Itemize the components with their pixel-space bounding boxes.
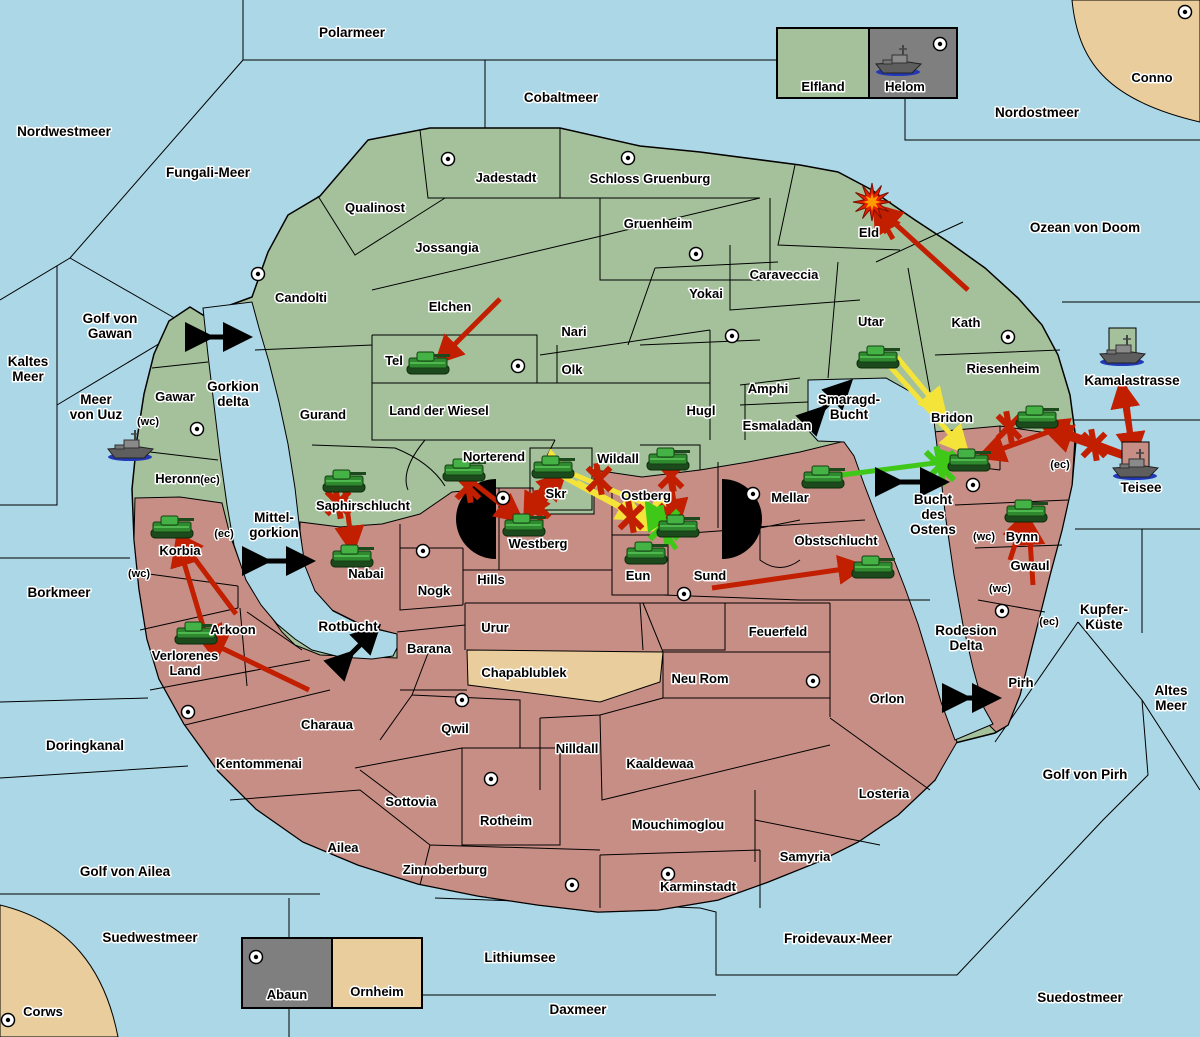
legend-label-elfland: Elfland: [801, 79, 844, 94]
coast-status-label: (ec): [1050, 459, 1070, 471]
region-label[interactable]: Conno: [1131, 70, 1172, 85]
region-label[interactable]: Neu Rom: [671, 671, 728, 686]
city-marker: [252, 268, 265, 281]
region-label[interactable]: Nilldall: [556, 741, 599, 756]
sea-label: Golf von Ailea: [80, 864, 171, 879]
region-label[interactable]: Ailea: [327, 840, 359, 855]
region-label[interactable]: Kaaldewaa: [626, 756, 694, 771]
city-marker: [996, 605, 1009, 618]
region-label[interactable]: Sottovia: [385, 794, 437, 809]
city-marker: [747, 488, 760, 501]
region-label[interactable]: Tel: [385, 353, 403, 368]
sea-label: Nordwestmeer: [17, 124, 112, 139]
coast-status-label: (ec): [200, 474, 220, 486]
region-label[interactable]: Korbia: [159, 543, 201, 558]
sea-label: Borkmeer: [27, 585, 91, 600]
sea-label: Kupfer-Küste: [1080, 602, 1128, 632]
region-label[interactable]: Hugl: [687, 403, 716, 418]
city-marker: [690, 248, 703, 261]
city-marker: [512, 360, 525, 373]
region-label[interactable]: Qualinost: [345, 200, 406, 215]
city-marker: [622, 152, 635, 165]
region-label[interactable]: Samyria: [780, 849, 831, 864]
region-label[interactable]: Obstschlucht: [794, 533, 878, 548]
legend-label-abaun: Abaun: [267, 987, 308, 1002]
region-label[interactable]: Schloss Gruenburg: [590, 171, 711, 186]
region-label[interactable]: Caraveccia: [750, 267, 819, 282]
region-label[interactable]: Pirh: [1008, 675, 1033, 690]
game-map: Elfland Helom Abaun Ornheim PolarmeerCob…: [0, 0, 1200, 1037]
coast-status-label: (wc): [973, 531, 995, 543]
region-label[interactable]: Feuerfeld: [749, 624, 808, 639]
region-label[interactable]: Yokai: [689, 286, 723, 301]
region-label[interactable]: Eld: [859, 225, 879, 240]
coast-status-label: (wc): [989, 583, 1011, 595]
region-label[interactable]: Nari: [561, 324, 586, 339]
sea-label: Lithiumsee: [484, 950, 556, 965]
city-marker: [934, 38, 947, 51]
city-marker: [182, 706, 195, 719]
city-marker: [1179, 6, 1192, 19]
region-label[interactable]: Nogk: [418, 583, 451, 598]
sea-label: Suedwestmeer: [102, 930, 198, 945]
region-label[interactable]: Skr: [546, 486, 567, 501]
region-label[interactable]: Westberg: [509, 536, 568, 551]
region-label[interactable]: Sund: [694, 568, 727, 583]
sea-label: Mittel-gorkion: [249, 510, 299, 540]
region-label[interactable]: Mellar: [771, 490, 809, 505]
region-label[interactable]: Corws: [23, 1004, 63, 1019]
sea-label: Golf vonGawan: [83, 311, 138, 341]
legend-bottom: Abaun Ornheim: [242, 938, 422, 1008]
region-label[interactable]: Orlon: [870, 691, 905, 706]
sea-label: AltesMeer: [1154, 683, 1187, 713]
sea-label: Rotbucht: [318, 619, 378, 634]
region-label[interactable]: Land der Wiesel: [389, 403, 489, 418]
city-marker: [2, 1014, 15, 1027]
city-marker: [485, 773, 498, 786]
city-marker: [678, 588, 691, 601]
sea-label: Daxmeer: [549, 1002, 607, 1017]
sea-label: Polarmeer: [319, 25, 386, 40]
city-marker: [497, 492, 510, 505]
region-label[interactable]: Urur: [481, 620, 508, 635]
region-label[interactable]: Nabai: [348, 566, 383, 581]
region-label[interactable]: Ostberg: [621, 488, 671, 503]
region-label[interactable]: Bynn: [1006, 529, 1039, 544]
sea-label: Nordostmeer: [995, 105, 1080, 120]
sea-label: Cobaltmeer: [524, 90, 599, 105]
sea-label: Golf von Pirh: [1043, 767, 1128, 782]
region-label[interactable]: Riesenheim: [967, 361, 1040, 376]
sea-label: Froidevaux-Meer: [784, 931, 893, 946]
legend-label-helom: Helom: [885, 79, 925, 94]
city-marker: [442, 153, 455, 166]
sea-label: Suedostmeer: [1037, 990, 1123, 1005]
region-label[interactable]: Jadestadt: [476, 170, 537, 185]
region-label[interactable]: Wildall: [597, 451, 639, 466]
sea-label: Ozean von Doom: [1030, 220, 1140, 235]
region-label[interactable]: Arkoon: [210, 622, 256, 637]
region-label[interactable]: Karminstadt: [660, 879, 737, 894]
region-label[interactable]: Heronn: [155, 471, 201, 486]
region-label[interactable]: Olk: [562, 362, 584, 377]
region-label[interactable]: Mouchimoglou: [632, 817, 724, 832]
region-label[interactable]: Amphi: [748, 381, 788, 396]
region-label[interactable]: Charaua: [301, 717, 354, 732]
city-marker: [566, 879, 579, 892]
region-label[interactable]: Qwil: [441, 721, 468, 736]
region-label[interactable]: Losteria: [859, 786, 910, 801]
sea-label: Kamalastrasse: [1084, 373, 1180, 388]
city-marker: [726, 330, 739, 343]
region-label[interactable]: Kath: [952, 315, 981, 330]
sea-label: KaltesMeer: [8, 354, 49, 384]
legend-top: Elfland Helom: [777, 28, 957, 98]
city-marker: [967, 479, 980, 492]
coast-status-label: (ec): [214, 528, 234, 540]
region-label[interactable]: Gawar: [155, 389, 195, 404]
city-marker: [456, 694, 469, 707]
sea-label: Doringkanal: [46, 738, 124, 753]
coast-status-label: (wc): [128, 568, 150, 580]
city-marker: [1002, 331, 1015, 344]
region-label[interactable]: Rotheim: [480, 813, 532, 828]
region-label[interactable]: Norterend: [463, 449, 525, 464]
city-marker: [417, 545, 430, 558]
map-canvas: Elfland Helom Abaun Ornheim PolarmeerCob…: [0, 0, 1200, 1037]
region-label[interactable]: Kentommenai: [216, 756, 302, 771]
region-label[interactable]: Barana: [407, 641, 452, 656]
city-marker: [250, 951, 263, 964]
region-label[interactable]: Zinnoberburg: [403, 862, 488, 877]
region-label[interactable]: Chapablublek: [481, 665, 567, 680]
region-label[interactable]: Saphirschlucht: [316, 498, 411, 513]
sea-label: Fungali-Meer: [166, 165, 251, 180]
region-label[interactable]: Gruenheim: [624, 216, 693, 231]
region-label[interactable]: Jossangia: [415, 240, 479, 255]
region-label[interactable]: Elchen: [429, 299, 472, 314]
city-marker: [807, 675, 820, 688]
region-label[interactable]: Eun: [626, 568, 651, 583]
legend-label-ornheim: Ornheim: [350, 984, 403, 999]
region-label[interactable]: Gwaul: [1010, 558, 1049, 573]
region-label[interactable]: Gurand: [300, 407, 346, 422]
region-label[interactable]: Bridon: [931, 410, 973, 425]
region-label[interactable]: Candolti: [275, 290, 327, 305]
coast-status-label: (wc): [137, 416, 159, 428]
coast-status-label: (ec): [1039, 616, 1059, 628]
region-label[interactable]: Utar: [858, 314, 884, 329]
city-marker: [191, 423, 204, 436]
sea-label: Teisee: [1120, 480, 1162, 495]
region-label[interactable]: Hills: [477, 572, 504, 587]
region-label[interactable]: Esmaladan: [743, 418, 812, 433]
